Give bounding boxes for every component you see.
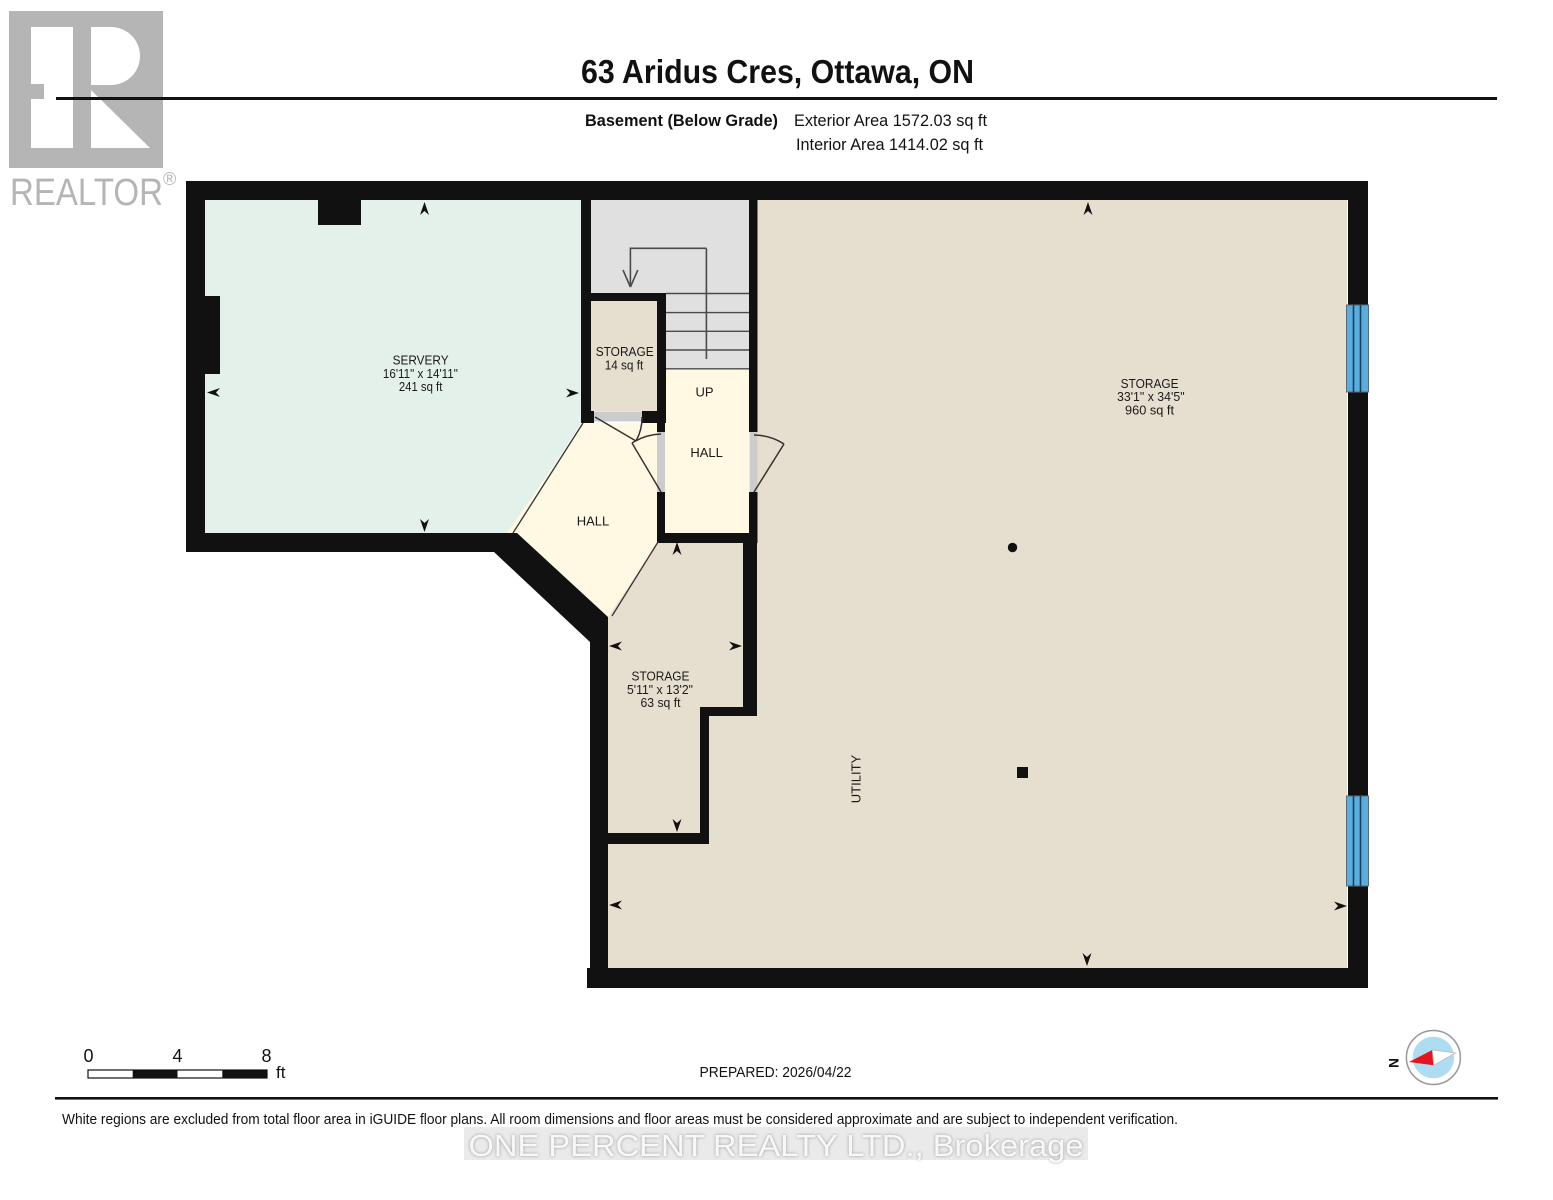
svg-text:STORAGE: STORAGE [632, 669, 690, 684]
svg-text:White regions are excluded fro: White regions are excluded from total fl… [62, 1111, 1178, 1128]
svg-text:PREPARED: 2026/04/22: PREPARED: 2026/04/22 [700, 1064, 852, 1081]
svg-text:5'11" x 13'2": 5'11" x 13'2" [627, 683, 693, 697]
svg-text:63 sq ft: 63 sq ft [641, 696, 682, 710]
svg-text:HALL: HALL [577, 514, 610, 529]
svg-text:REALTOR: REALTOR [10, 172, 163, 214]
svg-text:SERVERY: SERVERY [393, 353, 449, 368]
svg-text:®: ® [163, 169, 176, 189]
svg-text:Interior Area 1414.02 sq ft: Interior Area 1414.02 sq ft [796, 136, 983, 154]
svg-text:4: 4 [172, 1046, 182, 1066]
svg-text:UTILITY: UTILITY [849, 754, 864, 803]
svg-text:N: N [1387, 1058, 1402, 1068]
svg-text:ONE PERCENT REALTY LTD., Broke: ONE PERCENT REALTY LTD., Brokerage [469, 1128, 1084, 1163]
svg-text:STORAGE: STORAGE [1121, 376, 1179, 391]
svg-text:14 sq ft: 14 sq ft [605, 358, 644, 372]
svg-text:960 sq ft: 960 sq ft [1125, 403, 1175, 417]
svg-text:241 sq ft: 241 sq ft [399, 380, 443, 394]
svg-text:Exterior Area 1572.03 sq ft: Exterior Area 1572.03 sq ft [794, 112, 987, 130]
svg-text:ft: ft [276, 1063, 286, 1082]
svg-text:HALL: HALL [690, 445, 723, 460]
svg-text:16'11" x 14'11": 16'11" x 14'11" [383, 367, 458, 381]
svg-text:UP: UP [695, 385, 713, 400]
svg-text:8: 8 [261, 1046, 271, 1066]
svg-text:STORAGE: STORAGE [596, 344, 654, 359]
svg-text:0: 0 [83, 1046, 93, 1066]
svg-text:63 Aridus Cres, Ottawa, ON: 63 Aridus Cres, Ottawa, ON [581, 53, 974, 90]
svg-text:33'1" x 34'5": 33'1" x 34'5" [1117, 390, 1185, 404]
svg-text:Basement (Below Grade): Basement (Below Grade) [585, 112, 778, 130]
